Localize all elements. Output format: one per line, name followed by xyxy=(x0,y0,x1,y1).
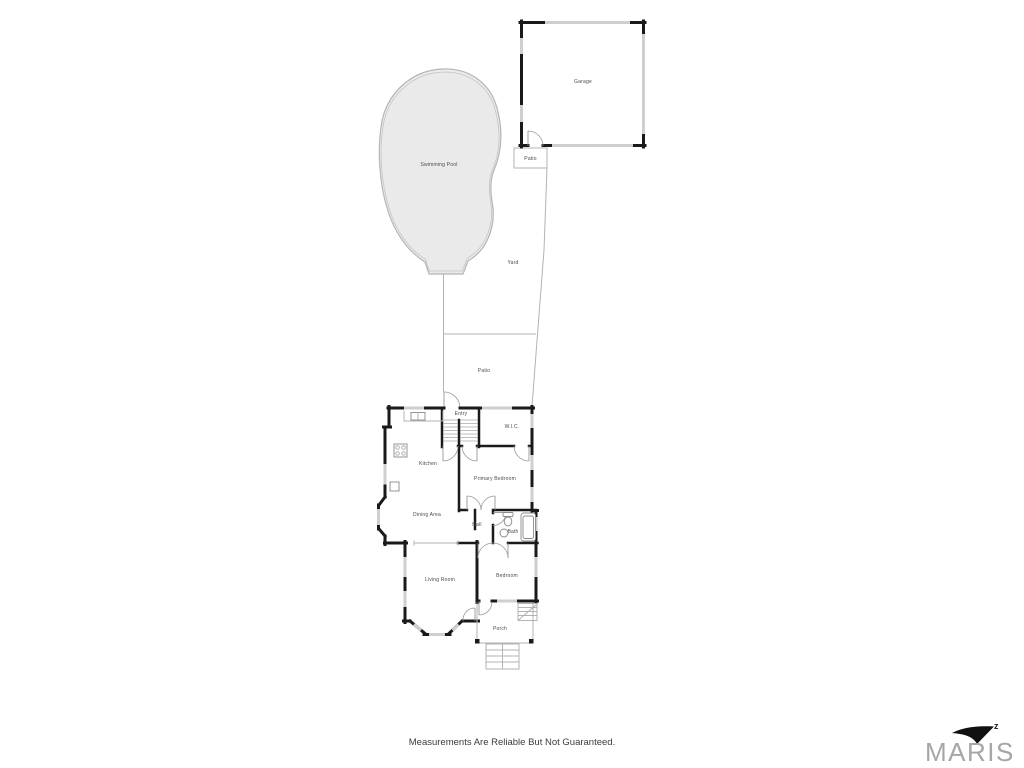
room-label-primary-bedroom: Primary Bedroom xyxy=(474,476,516,482)
maris-wordmark: MARIS xyxy=(925,737,1015,767)
room-label-dining-area: Dining Area xyxy=(413,512,441,518)
room-label-bedroom: Bedroom xyxy=(496,573,518,579)
room-label-living-room: Living Room xyxy=(425,577,455,583)
toilet-icon xyxy=(503,513,513,517)
room-label-entry: Entry xyxy=(455,411,468,417)
room-label-kitchen: Kitchen xyxy=(419,461,437,467)
room-label-patio-house: Patio xyxy=(478,368,490,374)
room-label-swimming-pool: Swimming Pool xyxy=(420,162,457,168)
maris-z-mark: z xyxy=(994,721,999,731)
room-label-garage: Garage xyxy=(574,79,592,85)
disclaimer-text: Measurements Are Reliable But Not Guaran… xyxy=(409,737,615,748)
room-labels: Swimming Pool Garage Patio Yard Patio En… xyxy=(413,79,592,632)
floor-plan-drawing: Swimming Pool Garage Patio Yard Patio En… xyxy=(0,0,1024,768)
entry-staircase xyxy=(444,420,478,446)
kitchen-fixtures xyxy=(390,411,443,492)
floor-plan-page: Swimming Pool Garage Patio Yard Patio En… xyxy=(0,0,1024,768)
room-label-wic: W.I.C. xyxy=(505,424,520,430)
room-label-porch: Porch xyxy=(493,626,507,632)
room-label-hall: Hall xyxy=(472,522,481,528)
swimming-pool-shape xyxy=(379,69,501,274)
room-label-yard: Yard xyxy=(508,260,519,266)
porch-and-steps xyxy=(475,603,537,670)
room-label-patio-garage: Patio xyxy=(524,156,536,162)
maris-logo: z MARIS xyxy=(925,721,1015,767)
room-label-bath: Bath xyxy=(507,529,518,535)
bath-fixtures xyxy=(500,513,536,542)
